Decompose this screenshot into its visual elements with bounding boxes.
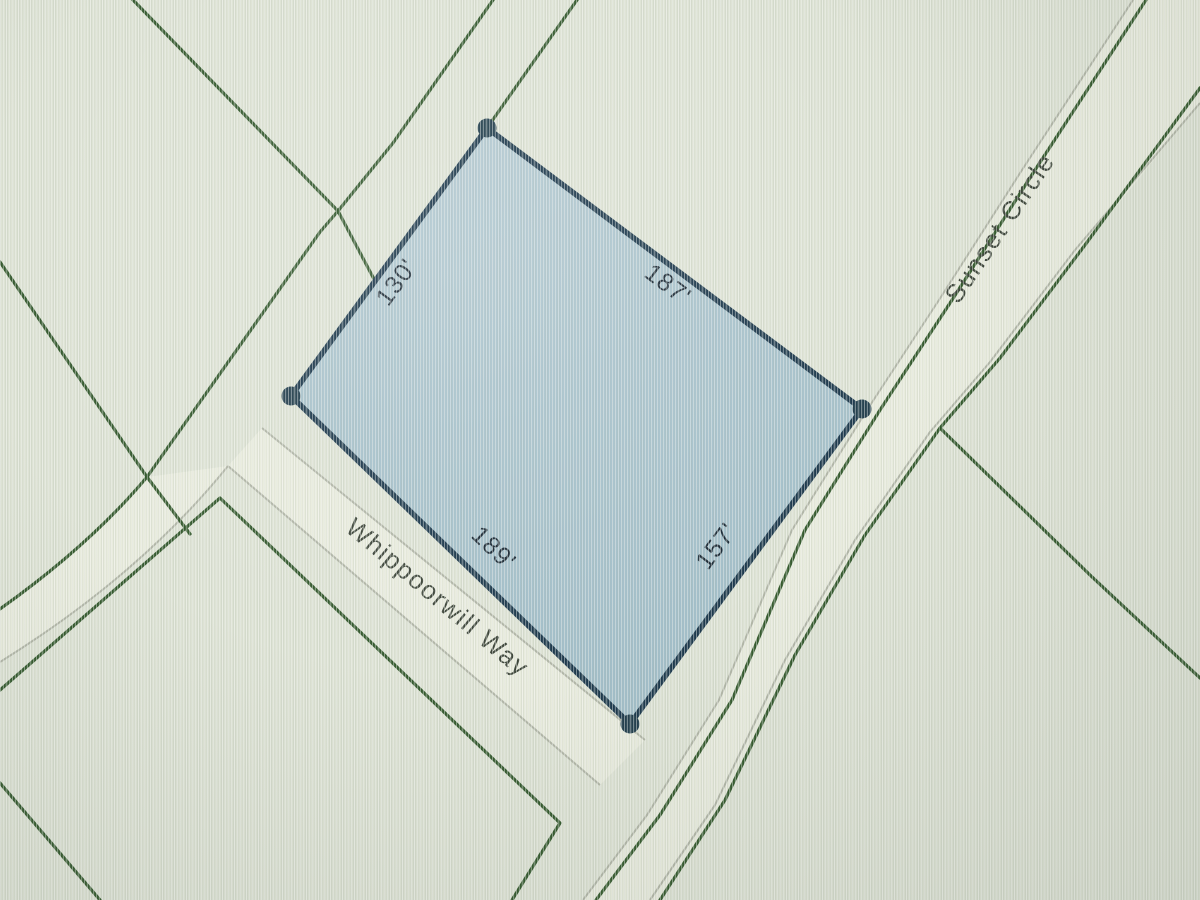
whippoorwill-way-curve-surface xyxy=(0,466,228,662)
parcel-vertex-dot-top xyxy=(478,119,497,138)
lot-line-to-top-vertex xyxy=(487,0,577,128)
lot-line-bottom-left xyxy=(0,783,100,900)
lot-line-spur-to-parcel xyxy=(338,211,375,281)
parcel-vertex-dot-left xyxy=(282,387,301,406)
parcel-vertex-dot-right xyxy=(853,400,872,419)
parcel-map: 130' 187' 189' 157' Sunset Circle Whippo… xyxy=(0,0,1200,900)
lot-line-east-branch xyxy=(940,428,1200,678)
lot-line-northwest-a xyxy=(133,0,338,211)
parcel-vertex-dot-bottom xyxy=(621,715,640,734)
map-canvas: 130' 187' 189' 157' Sunset Circle Whippo… xyxy=(0,0,1200,900)
